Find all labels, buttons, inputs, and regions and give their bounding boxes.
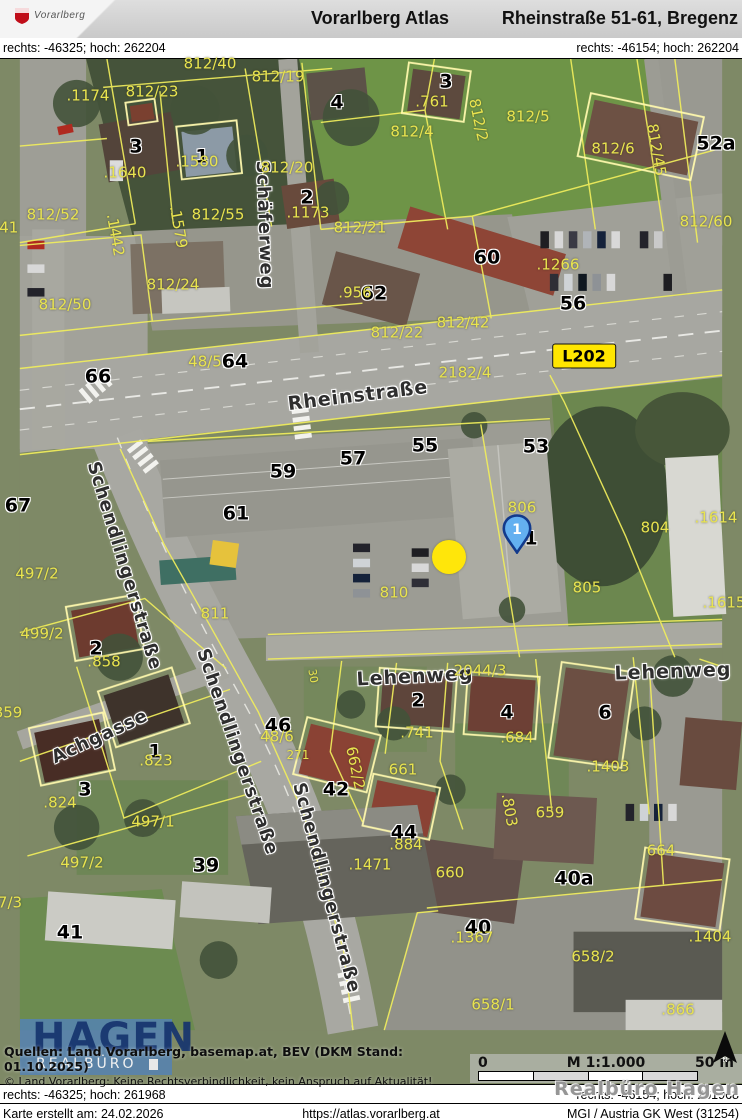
parcel-number: 497/2 (60, 856, 103, 871)
parcel-number: .1471 (349, 858, 392, 873)
house-number: 53 (523, 438, 549, 457)
page-header: Vorarlberg Vorarlberg Atlas Rheinstraße … (0, 0, 742, 40)
house-number: 4 (500, 704, 513, 723)
coord-bottom-left: rechts: -46325; hoch: 261968 (3, 1088, 166, 1102)
house-number: 41 (57, 924, 83, 943)
house-number: 61 (223, 505, 249, 524)
location-pin[interactable]: 1 (502, 514, 532, 554)
house-number: 3 (439, 73, 452, 92)
parcel-number: 812/5 (506, 110, 549, 125)
map-attribution: Quellen: Land Vorarlberg, basemap.at, BE… (4, 1044, 484, 1088)
parcel-number: .1615 (703, 596, 742, 611)
coordinate-bar-top: rechts: -46325; hoch: 262204 rechts: -46… (0, 38, 742, 57)
parcel-number: .761 (415, 95, 448, 110)
parcel-number: 812/21 (334, 221, 387, 236)
parcel-number: 812/19 (252, 70, 305, 85)
parcel-number: 812/50 (39, 298, 92, 313)
parcel-number: .956 (338, 286, 371, 301)
house-number: 40a (554, 870, 593, 889)
parcel-number: 812/52 (27, 208, 80, 223)
house-number: 6 (598, 704, 611, 723)
parcel-number: .1173 (287, 206, 330, 221)
parcel-number: 497/1 (131, 815, 174, 830)
parcel-number: .1266 (537, 258, 580, 273)
parcel-number: .741 (400, 726, 433, 741)
highlight-dot (432, 540, 466, 574)
vorarlberg-logo-icon (14, 7, 30, 25)
parcel-number: .1403 (587, 760, 630, 775)
vorarlberg-logo: Vorarlberg (8, 3, 118, 33)
parcel-number: 812/24 (147, 278, 200, 293)
parcel-number: .824 (43, 796, 76, 811)
house-number: 66 (85, 368, 111, 387)
house-number: 4 (330, 94, 343, 113)
parcel-number: 7/3 (0, 896, 22, 911)
parcel-number: 658/2 (571, 950, 614, 965)
parcel-number: 441 (0, 221, 18, 236)
house-number: 59 (270, 463, 296, 482)
house-number: 57 (340, 450, 366, 469)
parcel-number: 658/1 (471, 998, 514, 1013)
parcel-number: 812/42 (437, 316, 490, 331)
parcel-number: 812/40 (184, 57, 237, 72)
parcel-number: .1614 (695, 511, 738, 526)
parcel-number: 48/5 (188, 355, 222, 370)
location-pin-icon: 1 (502, 514, 532, 554)
parcel-number: .803 (499, 792, 520, 828)
parcel-number: .1174 (67, 89, 110, 104)
parcel-number: .684 (500, 731, 533, 746)
parcel-number: .858 (87, 655, 120, 670)
parcel-number: .823 (139, 754, 172, 769)
coord-top-left: rechts: -46325; hoch: 262204 (3, 41, 166, 55)
parcel-number: 812/6 (591, 142, 634, 157)
parcel-number: 812/20 (261, 161, 314, 176)
parcel-number: 812/60 (680, 215, 733, 230)
parcel-number: .1640 (104, 166, 147, 181)
parcel-number: .884 (389, 838, 422, 853)
house-number: 52a (696, 135, 735, 154)
parcel-number: 811 (201, 607, 230, 622)
page-title: Rheinstraße 51-61, Bregenz (502, 8, 738, 29)
parcel-number: 812/22 (371, 326, 424, 341)
parcel-number: 659 (536, 806, 565, 821)
attribution-sources: Quellen: Land Vorarlberg, basemap.at, BE… (4, 1044, 484, 1074)
parcel-number: 271 (287, 749, 310, 761)
parcel-number: 804 (641, 521, 670, 536)
parcel-number: 2182/4 (439, 366, 492, 381)
house-number: 56 (560, 295, 586, 314)
parcel-number: .1404 (689, 930, 732, 945)
attribution-disclaimer: © Land Vorarlberg: Keine Rechtsverbindli… (4, 1075, 484, 1088)
atlas-print-page: Vorarlberg Vorarlberg Atlas Rheinstraße … (0, 0, 742, 1120)
coord-top-right: rechts: -46154; hoch: 262204 (576, 41, 739, 55)
parcel-number: 497/2 (15, 567, 58, 582)
parcel-number: 812/23 (126, 85, 179, 100)
svg-text:N: N (722, 1056, 727, 1064)
parcel-number: 664 (647, 844, 676, 859)
house-number: 42 (323, 781, 349, 800)
parcel-number: 661 (389, 763, 418, 778)
parcel-number: 812/4 (390, 125, 433, 140)
parcel-number: .866 (661, 1003, 694, 1018)
house-number: 3 (78, 781, 91, 800)
app-title: Vorarlberg Atlas (260, 8, 500, 29)
house-number: 55 (412, 437, 438, 456)
parcel-number: 812/55 (192, 208, 245, 223)
street-label: Lehenweg (614, 660, 732, 683)
parcel-number: 30 (306, 668, 319, 684)
house-number: 3 (129, 138, 142, 157)
road-badge-l202: L202 (552, 344, 616, 369)
house-number: 67 (5, 497, 31, 516)
watermark: Realbüro Hagen (554, 1078, 740, 1100)
parcel-number: 805 (573, 581, 602, 596)
parcel-number: 48/6 (260, 730, 294, 745)
house-number: 64 (222, 353, 248, 372)
logo-text: Vorarlberg (34, 10, 85, 21)
house-number: 39 (193, 857, 219, 876)
parcel-number: 859 (0, 706, 22, 721)
parcel-number: .1367 (451, 931, 494, 946)
parcel-number: .1580 (176, 155, 219, 170)
street-label: Schäferweg (253, 160, 275, 290)
house-number: 60 (474, 249, 500, 268)
footer-bar: Karte erstellt am: 24.02.2026 https://at… (0, 1103, 742, 1120)
map-canvas[interactable] (0, 58, 742, 1084)
svg-text:1: 1 (512, 522, 522, 538)
crs-label: MGI / Austria GK West (31254) (567, 1107, 739, 1120)
house-number: 2 (411, 692, 424, 711)
north-arrow-icon: N (712, 1030, 738, 1071)
parcel-number: 660 (436, 866, 465, 881)
parcel-number: 499/2 (20, 627, 63, 642)
parcel-number: 810 (380, 586, 409, 601)
parcel-number: 2044/3 (454, 664, 507, 679)
